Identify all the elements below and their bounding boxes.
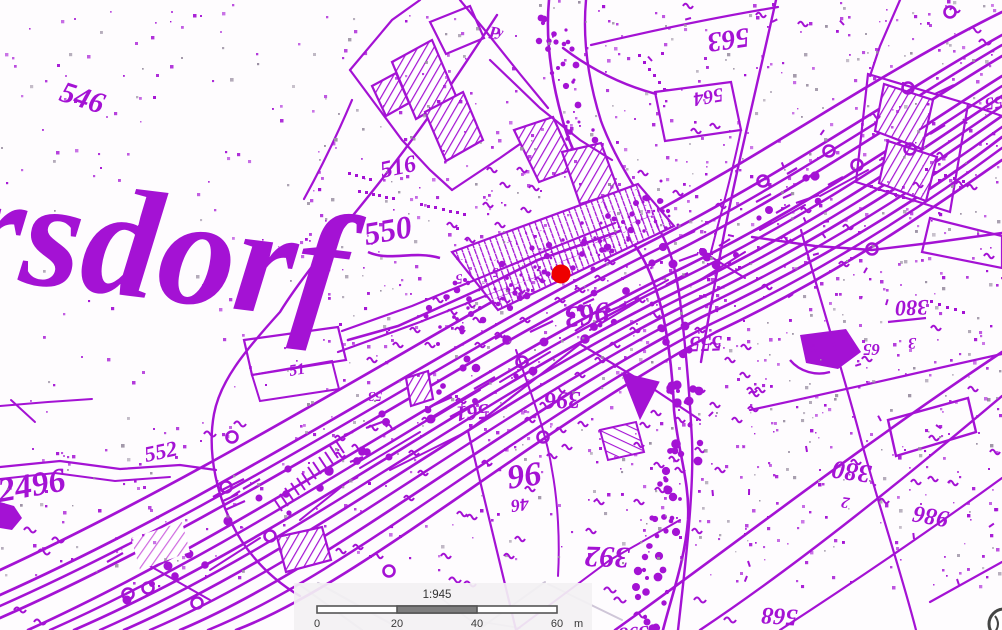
- svg-text:0: 0: [314, 618, 320, 630]
- svg-text:963: 963: [562, 295, 611, 334]
- svg-text:563: 563: [705, 21, 751, 58]
- svg-text:55: 55: [984, 92, 1002, 114]
- svg-text:561: 561: [455, 399, 490, 427]
- svg-text:568: 568: [761, 602, 799, 630]
- svg-text:51: 51: [288, 360, 307, 380]
- svg-text:m: m: [574, 618, 583, 630]
- svg-text:60: 60: [551, 618, 563, 630]
- svg-text:3: 3: [908, 334, 918, 351]
- svg-text:46: 46: [510, 494, 532, 516]
- svg-text:555: 555: [689, 331, 723, 357]
- svg-text:20: 20: [391, 618, 403, 630]
- svg-text:40: 40: [471, 618, 483, 630]
- svg-text:396: 396: [544, 386, 582, 413]
- svg-text:1:945: 1:945: [423, 589, 452, 601]
